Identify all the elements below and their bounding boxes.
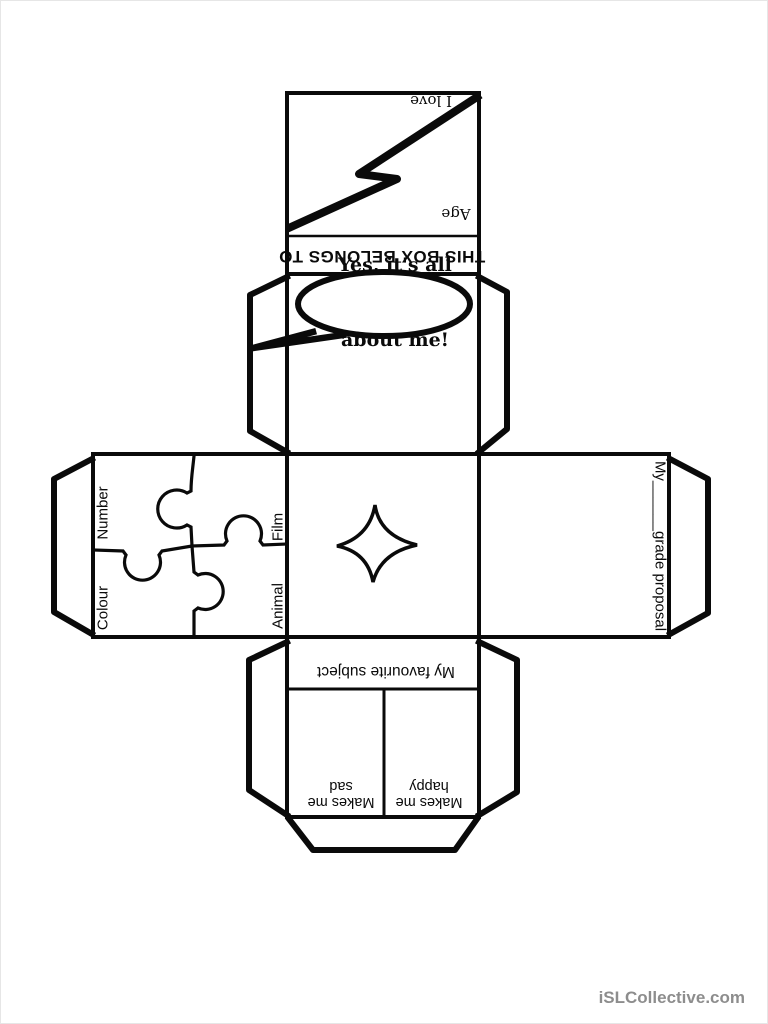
four-point-star-icon xyxy=(337,505,417,582)
makes-me-sad-line2: sad xyxy=(329,778,352,794)
flap-proposal-right xyxy=(670,459,708,634)
makes-me-happy-line1: Makes me xyxy=(396,794,463,810)
puzzle-film-label: Film xyxy=(270,513,287,541)
cube-net-outline xyxy=(93,93,669,817)
grade-proposal-label: My______grade proposal xyxy=(652,461,669,631)
favourite-subject-label: My favourite subject xyxy=(317,662,455,680)
makes-me-sad-line1: Makes me xyxy=(308,794,375,810)
flap-subject-right xyxy=(479,642,517,815)
i-love-label: I love xyxy=(410,92,452,110)
puzzle-colour-label: Colour xyxy=(95,586,112,630)
flap-subject-left xyxy=(249,642,287,815)
flap-speech-left xyxy=(250,277,287,452)
puzzle-number-label: Number xyxy=(95,486,112,539)
islcollective-watermark: iSLCollective.com xyxy=(599,988,745,1008)
speech-bubble-text: Yes, it's all about me! xyxy=(338,203,452,403)
makes-me-happy-label: Makes me happy xyxy=(396,778,463,810)
makes-me-happy-line2: happy xyxy=(409,778,449,794)
speech-bubble-line2: about me! xyxy=(338,328,452,353)
flap-speech-right xyxy=(479,277,507,452)
makes-me-sad-label: Makes me sad xyxy=(308,778,375,810)
speech-bubble-line1: Yes, it's all xyxy=(338,253,452,278)
worksheet-page: I love Age THIS BOX BELONGS TO Yes, it's… xyxy=(0,0,768,1024)
jigsaw-grid-icon xyxy=(93,456,287,637)
flap-puzzle-left xyxy=(54,459,92,634)
puzzle-animal-label: Animal xyxy=(270,583,287,629)
flap-bottom xyxy=(289,819,477,850)
